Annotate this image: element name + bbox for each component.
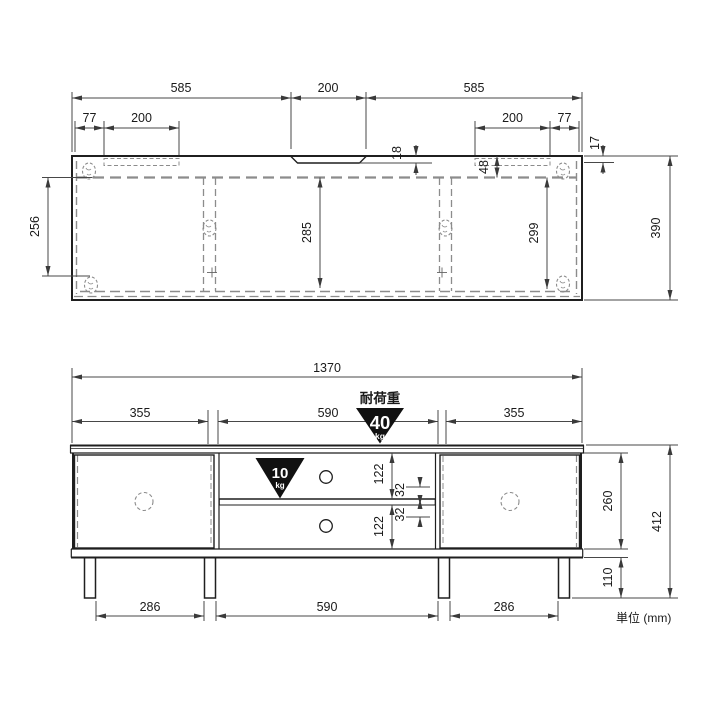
unit-note: 単位 (mm) xyxy=(616,610,671,625)
leg-3 xyxy=(439,558,450,599)
dim-front-width-total: 1370 xyxy=(313,361,341,375)
dim-top-span-right: 585 xyxy=(464,81,485,95)
dim-front-pitch-upper: 32 xyxy=(393,483,407,497)
dim-top-edge-lip: 17 xyxy=(588,136,602,150)
top-view-dim-row-2: 77 200 200 77 xyxy=(75,111,579,156)
dim-front-door-left: 355 xyxy=(130,406,151,420)
dim-front-leg-span-center: 590 xyxy=(317,600,338,614)
front-view-body xyxy=(70,445,584,598)
right-door-knob-hidden xyxy=(501,493,519,511)
right-door xyxy=(440,455,580,548)
dim-front-leg-height: 110 xyxy=(601,567,615,587)
dim-front-leg-span-right: 286 xyxy=(494,600,515,614)
dim-front-leg-span-left: 286 xyxy=(140,600,161,614)
dim-top-inset-right: 200 xyxy=(502,111,523,125)
hidden-groove-left xyxy=(104,159,179,166)
dim-front-pitch-lower: 32 xyxy=(393,508,407,522)
dim-front-opening-lower: 122 xyxy=(372,516,386,537)
dim-top-inset-left: 200 xyxy=(131,111,152,125)
leg-1 xyxy=(85,558,96,599)
load-capacity-shelf-unit: kg xyxy=(275,481,284,490)
left-door xyxy=(75,455,215,548)
top-view-dims-vertical: 256 285 299 48 390 17 18 xyxy=(28,136,678,300)
load-capacity-top-unit: kg xyxy=(375,431,385,441)
dim-top-depth-total: 390 xyxy=(649,218,663,239)
cable-notch xyxy=(291,157,366,164)
front-view-dim-rows: 1370 355 590 355 xyxy=(72,361,582,444)
dim-front-opening-width: 590 xyxy=(318,406,339,420)
front-view-dim-bottom: 286 590 286 xyxy=(96,600,558,621)
top-view: 585 200 585 77 200 200 77 xyxy=(28,81,678,300)
top-view-hidden-lines xyxy=(74,159,580,297)
leg-4 xyxy=(559,558,570,599)
dim-front-door-right: 355 xyxy=(504,406,525,420)
front-view: 1370 355 590 355 xyxy=(70,361,678,621)
dim-top-depth-center: 285 xyxy=(300,222,314,243)
legs xyxy=(85,558,570,599)
dim-top-depth-right: 299 xyxy=(527,223,541,244)
dim-front-inner-height: 260 xyxy=(601,491,615,512)
dim-top-notch-depth: 18 xyxy=(390,146,404,160)
dim-top-offset-left: 77 xyxy=(83,111,97,125)
cable-hole-lower xyxy=(320,520,333,533)
dim-top-span-left: 585 xyxy=(171,81,192,95)
tv-stand-technical-drawing: 585 200 585 77 200 200 77 xyxy=(0,0,713,713)
front-view-dims-right: 260 110 412 xyxy=(572,445,678,598)
dim-top-depth-left: 256 xyxy=(28,216,42,237)
dim-top-span-center: 200 xyxy=(318,81,339,95)
load-capacity-title: 耐荷重 xyxy=(360,390,401,406)
left-door-knob-hidden xyxy=(135,493,153,511)
center-shelf xyxy=(219,499,436,505)
center-marks xyxy=(207,268,447,278)
dim-front-opening-upper: 122 xyxy=(372,464,386,485)
dim-front-total-height: 412 xyxy=(650,511,664,532)
cable-hole-upper xyxy=(320,471,333,484)
dim-top-offset-right: 77 xyxy=(558,111,572,125)
leg-2 xyxy=(205,558,216,599)
load-capacity-top-value: 40 xyxy=(370,412,391,433)
front-view-dims-interior: 122 122 32 32 xyxy=(372,453,430,549)
dim-top-back-inset: 48 xyxy=(477,160,491,174)
drawing-canvas: 585 200 585 77 200 200 77 xyxy=(0,0,713,713)
cam-fittings xyxy=(83,163,570,293)
load-capacity-shelf-value: 10 xyxy=(272,465,289,482)
